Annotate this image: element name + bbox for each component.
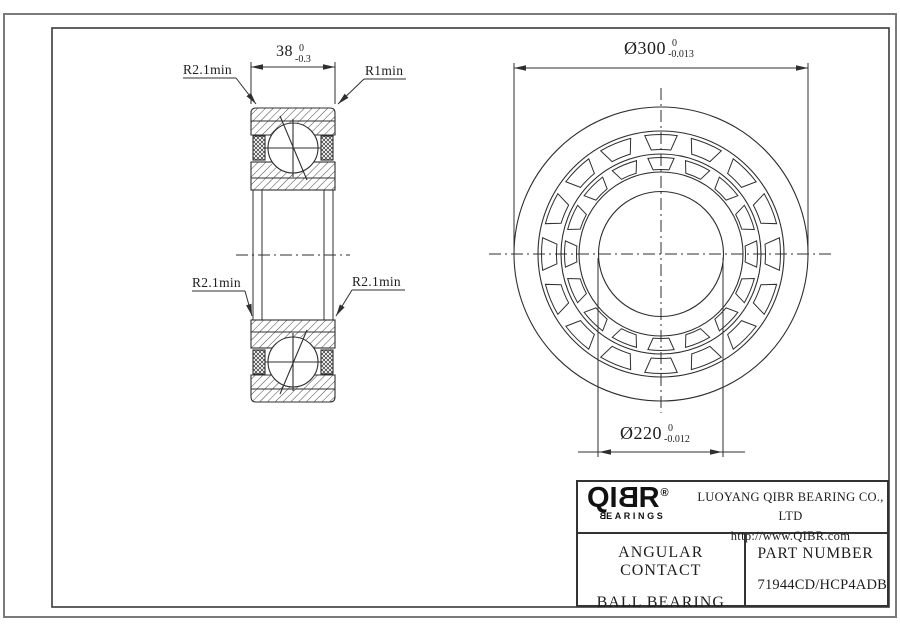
cage-pocket — [715, 177, 738, 200]
cage-pocket — [601, 346, 631, 369]
front-view-centerlines — [489, 88, 834, 413]
dimension-value: Ø300 — [624, 39, 666, 57]
cage-pocket — [601, 138, 631, 161]
title-block-header-row: QIBR® BEARINGS LUOYANG QIBR BEARING CO.,… — [578, 482, 887, 534]
product-name-cell: ANGULAR CONTACT BALL BEARING — [578, 532, 746, 605]
cage-pocket — [753, 194, 776, 224]
cage-section-right — [321, 350, 333, 374]
width-dimension-text: 38 0 -0.3 — [276, 44, 311, 65]
front-view — [489, 63, 834, 457]
logo-subtitle: BEARINGS — [597, 511, 694, 521]
part-number-cell: PART NUMBER 71944CD/HCP4ADB — [746, 532, 888, 605]
cage-section-left — [253, 350, 265, 374]
product-name-line1: ANGULAR CONTACT — [578, 544, 744, 580]
cage-section-left — [253, 136, 265, 160]
part-number-value: 71944CD/HCP4ADB — [758, 577, 888, 594]
title-block: QIBR® BEARINGS LUOYANG QIBR BEARING CO.,… — [576, 480, 889, 607]
dimension-tolerance: 0 -0.013 — [668, 39, 694, 60]
logo-wordmark: QIBR® — [587, 483, 694, 513]
dimension-tolerance: 0 -0.3 — [295, 44, 311, 65]
dimension-tolerance: 0 -0.012 — [664, 424, 690, 445]
dimension-value: Ø220 — [620, 424, 662, 442]
cage-pocket — [691, 138, 721, 161]
radius-label-top-left: R2.1min — [183, 62, 232, 78]
mirrored-b-glyph: B — [618, 483, 639, 513]
cage-pocket — [545, 284, 568, 314]
drawing-canvas: 38 0 -0.3 Ø300 0 -0.013 Ø220 0 -0.012 R2… — [0, 0, 900, 636]
cage-pocket — [545, 194, 568, 224]
part-number-label: PART NUMBER — [758, 545, 888, 563]
mirrored-b-glyph: B — [597, 511, 606, 521]
cage-pocket — [691, 346, 721, 369]
company-info: LUOYANG QIBR BEARING CO., LTD http://www… — [694, 482, 887, 532]
radius-label-mid-right: R2.1min — [352, 274, 401, 290]
cage-section-right — [321, 136, 333, 160]
registered-trademark-icon: ® — [661, 487, 669, 499]
cage-pocket — [715, 308, 738, 331]
cage-pocket — [584, 177, 607, 200]
company-logo: QIBR® BEARINGS — [578, 482, 694, 532]
section-view — [183, 62, 406, 402]
radius-label-top-right: R1min — [365, 63, 403, 79]
cage-pocket — [753, 284, 776, 314]
width-dimension-lines — [251, 62, 335, 104]
bore-dimension-text: Ø220 0 -0.012 — [620, 424, 690, 445]
cage-pocket — [584, 308, 607, 331]
product-name-line2: BALL BEARING — [578, 594, 744, 612]
od-dimension-text: Ø300 0 -0.013 — [624, 39, 694, 60]
company-name: LUOYANG QIBR BEARING CO., LTD — [694, 488, 887, 527]
dimension-value: 38 — [276, 44, 293, 60]
radius-label-mid-left: R2.1min — [192, 275, 241, 291]
title-block-detail-row: ANGULAR CONTACT BALL BEARING PART NUMBER… — [578, 532, 887, 605]
